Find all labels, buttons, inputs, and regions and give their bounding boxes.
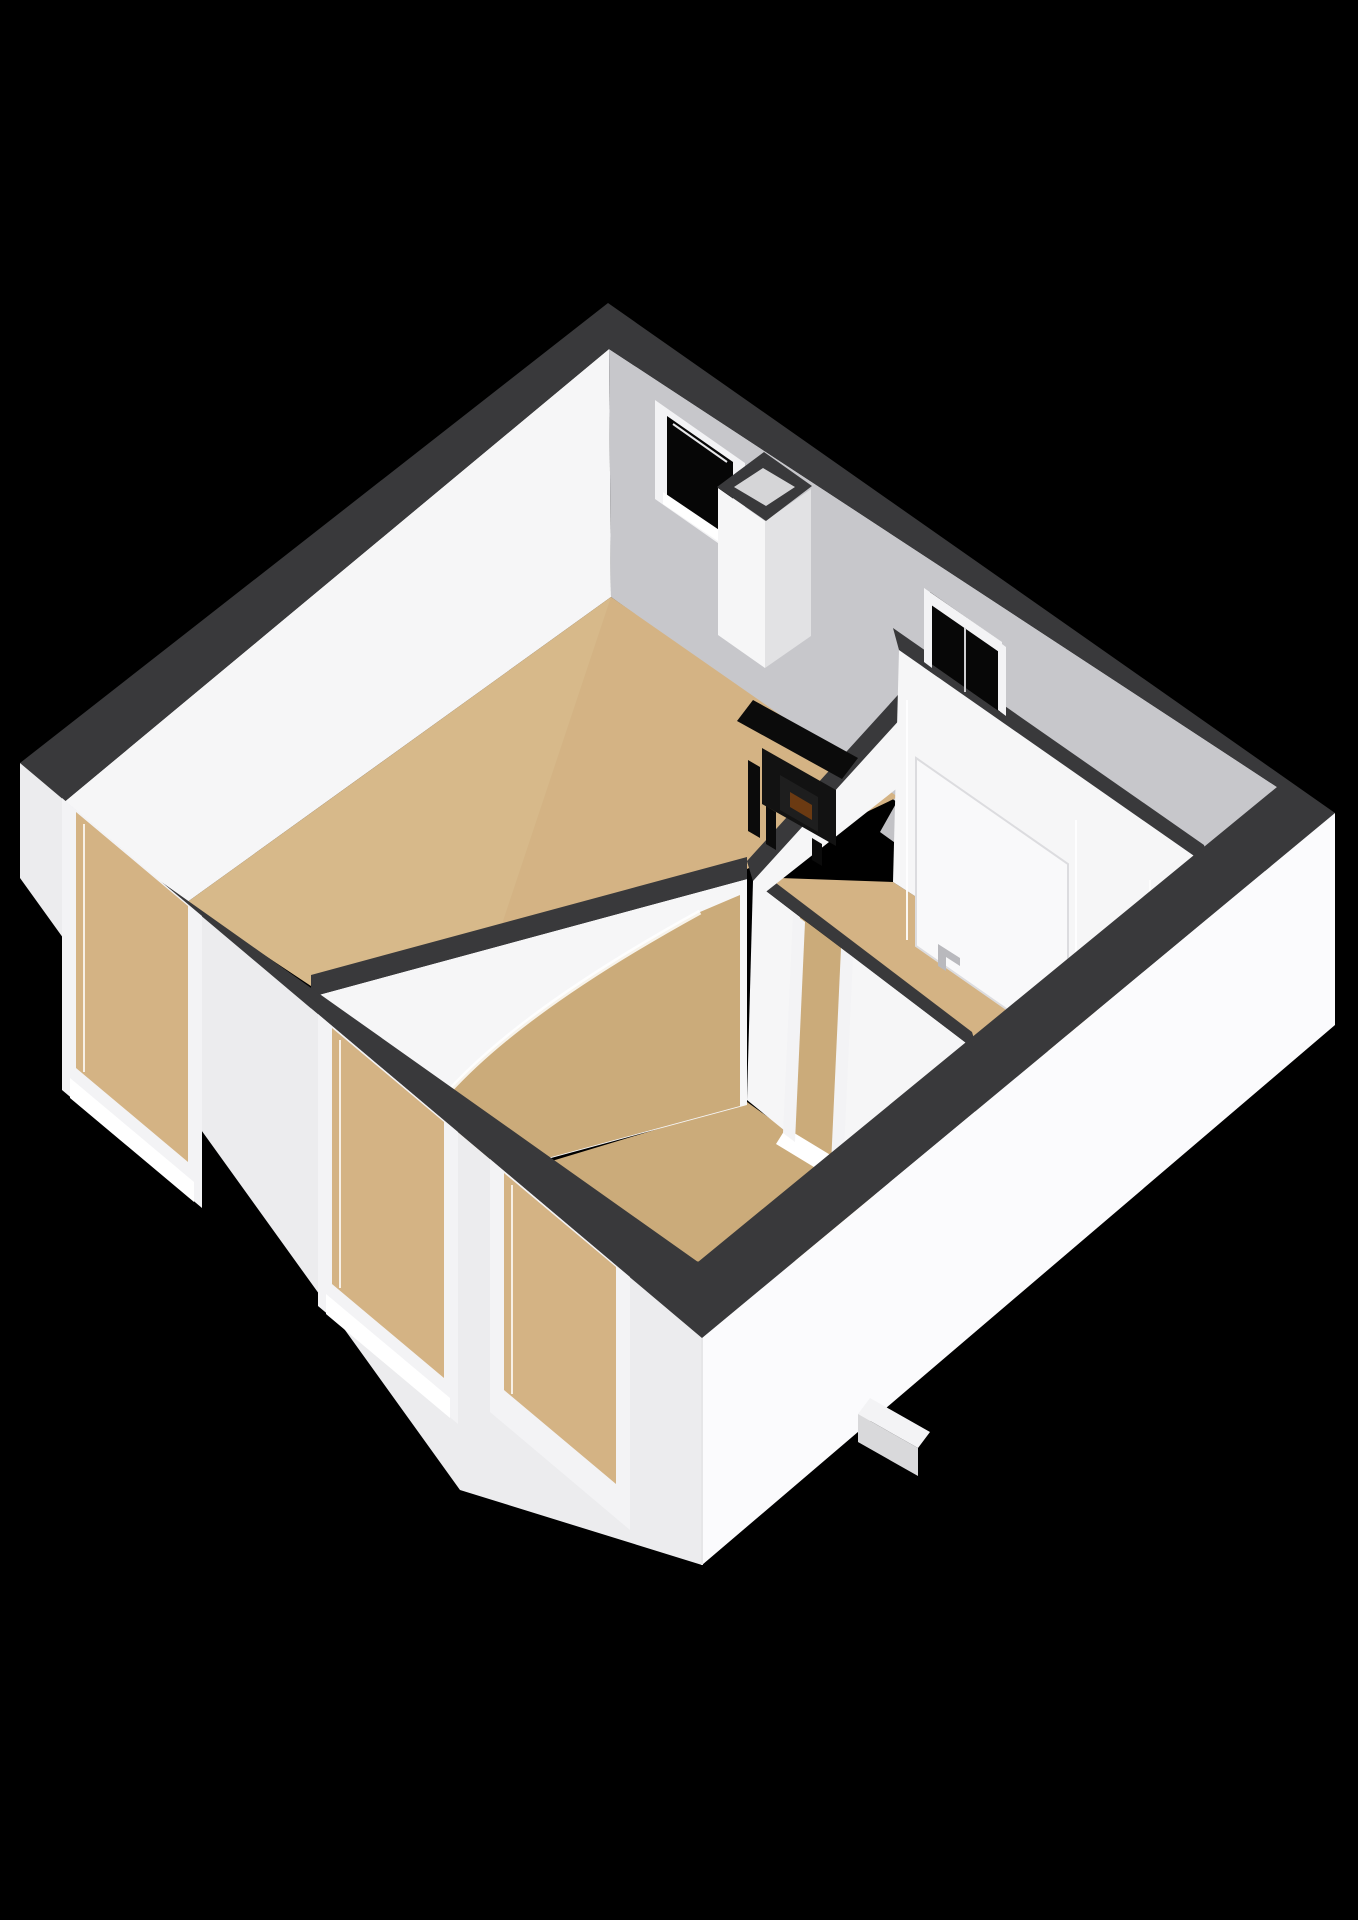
floorplan-3d-render xyxy=(0,0,1358,1920)
stove-left-pillar xyxy=(748,760,760,838)
stove-leg-left xyxy=(766,806,776,850)
chimney-shaft xyxy=(717,452,812,668)
floorplan-stage xyxy=(0,0,1358,1920)
